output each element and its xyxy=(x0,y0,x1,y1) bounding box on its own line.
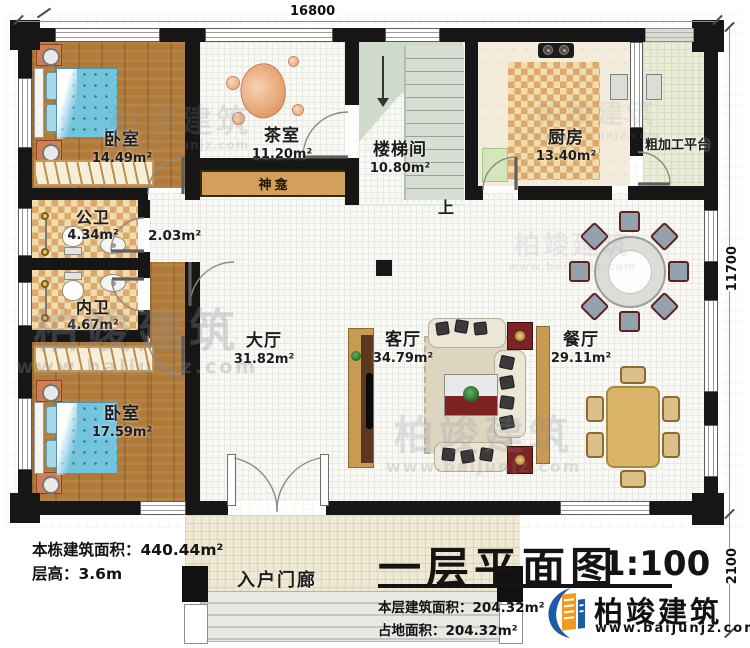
room-area: 10.80m² xyxy=(352,161,448,177)
room-name: 厨房 xyxy=(528,128,604,149)
room-area: 29.11m² xyxy=(540,351,622,367)
dimension-right: 11700 xyxy=(723,246,742,291)
dimension-line-top xyxy=(18,21,718,22)
room-area: 13.40m² xyxy=(528,149,604,165)
dimension-bottom-right: 2100 xyxy=(723,548,742,584)
room-area: 34.79m² xyxy=(362,351,444,367)
room-area: 31.82m² xyxy=(222,352,306,368)
room-name: 客厅 xyxy=(362,330,444,351)
room-name: 卧室 xyxy=(76,130,168,151)
room-label-hall: 大厅 31.82m² xyxy=(222,331,306,368)
room-name: 卧室 xyxy=(76,404,168,425)
note-total-area: 本栋建筑面积：440.44m² xyxy=(32,538,223,560)
room-name: 内卫 xyxy=(48,298,138,318)
room-label-private-bath: 内卫 4.67m² xyxy=(48,298,138,333)
room-name: 茶室 xyxy=(240,126,324,147)
note-footprint: 占地面积：204.32m² xyxy=(378,619,518,639)
room-label-public-bath: 公卫 4.34m² xyxy=(48,208,138,243)
scale-label: 1:100 xyxy=(602,544,710,584)
floor-plan-canvas: 神龛 xyxy=(0,0,750,648)
room-area: 4.67m² xyxy=(48,318,138,334)
room-label-living-room: 客厅 34.79m² xyxy=(362,330,444,367)
room-area: 17.59m² xyxy=(76,425,168,441)
label-entry-porch: 入户门廊 xyxy=(237,566,317,592)
room-label-dining-room: 餐厅 29.11m² xyxy=(540,330,622,367)
room-area: 4.34m² xyxy=(48,228,138,244)
label-corridor-area: 2.03m² xyxy=(148,228,201,244)
room-area: 14.49m² xyxy=(76,151,168,167)
brand-site: www.baijunjz.com xyxy=(595,621,750,636)
note-floor-area: 本层建筑面积：204.32m² xyxy=(378,596,545,616)
note-floor-height: 层高：3.6m xyxy=(32,562,122,584)
room-label-bedroom-top: 卧室 14.49m² xyxy=(76,130,168,167)
room-name: 公卫 xyxy=(48,208,138,228)
room-area: 11.20m² xyxy=(240,147,324,163)
room-label-bedroom-bottom: 卧室 17.59m² xyxy=(76,404,168,441)
title-underline xyxy=(378,584,672,588)
label-stairs-up: 上 xyxy=(438,194,454,218)
room-label-kitchen: 厨房 13.40m² xyxy=(528,128,604,165)
room-name: 楼梯间 xyxy=(352,140,448,161)
label-prep-platform: 粗加工平台 xyxy=(645,134,710,153)
room-label-tea-room: 茶室 11.20m² xyxy=(240,126,324,163)
room-name: 大厅 xyxy=(222,331,306,352)
dimension-top: 16800 xyxy=(288,4,337,19)
brand-logo-icon xyxy=(543,586,589,640)
room-name: 餐厅 xyxy=(540,330,622,351)
room-label-stairwell: 楼梯间 10.80m² xyxy=(352,140,448,177)
